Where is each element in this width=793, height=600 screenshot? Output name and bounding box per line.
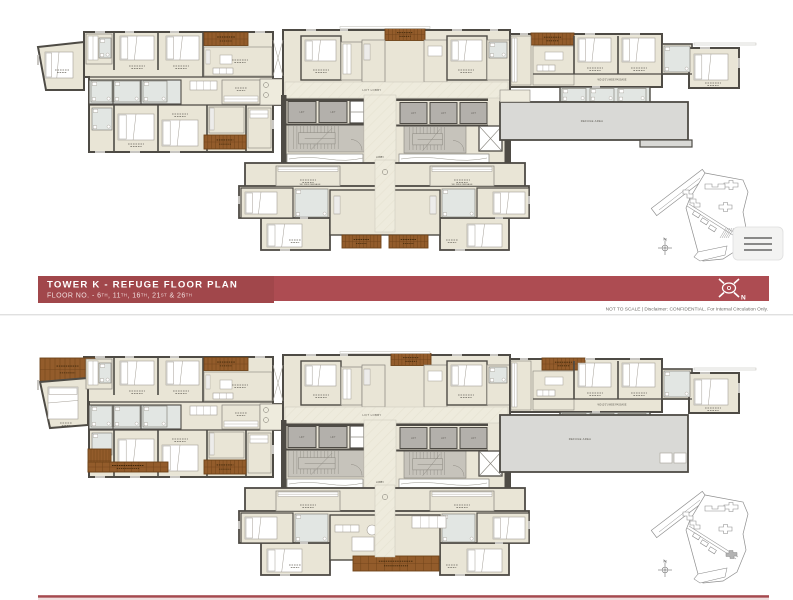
svg-text:TOWER K - REFUGE FLOOR PLAN: TOWER K - REFUGE FLOOR PLAN [47,280,238,291]
svg-text:LIFT: LIFT [471,112,476,115]
svg-text:LIFT: LIFT [471,437,476,440]
svg-text:REFUGE AREA: REFUGE AREA [581,119,603,123]
svg-text:LIFT: LIFT [441,437,446,440]
svg-text:LIFT LOBBY: LIFT LOBBY [362,413,381,417]
svg-text:LIFT: LIFT [411,437,416,440]
svg-text:WD WIDE PASSAGE: WD WIDE PASSAGE [452,183,473,186]
svg-text:LIFT LOBBY: LIFT LOBBY [362,88,381,92]
svg-text:WD (2'0") WIDE PASSAGE: WD (2'0") WIDE PASSAGE [597,79,626,82]
svg-text:LIFT: LIFT [441,112,446,115]
svg-text:N: N [741,295,746,302]
svg-text:FLOOR NO. - 6TH, 11TH, 16TH, 2: FLOOR NO. - 6TH, 11TH, 16TH, 21ST & 26TH [47,292,192,299]
svg-text:LIFT: LIFT [331,436,336,439]
svg-text:LIFT: LIFT [300,111,305,114]
svg-text:LOBBY: LOBBY [376,156,384,159]
svg-text:WD (2'0") WIDE PASSAGE: WD (2'0") WIDE PASSAGE [597,404,626,407]
svg-text:LIFT: LIFT [331,111,336,114]
svg-text:LIFT: LIFT [411,112,416,115]
svg-text:REFUGE AREA: REFUGE AREA [569,437,591,441]
svg-text:LOBBY: LOBBY [376,481,384,484]
svg-text:NOT TO SCALE | Disclaimer: CON: NOT TO SCALE | Disclaimer: CONFIDENTIAL.… [606,307,768,313]
svg-text:LIFT: LIFT [300,436,305,439]
svg-text:WD WIDE PASSAGE: WD WIDE PASSAGE [300,183,321,186]
